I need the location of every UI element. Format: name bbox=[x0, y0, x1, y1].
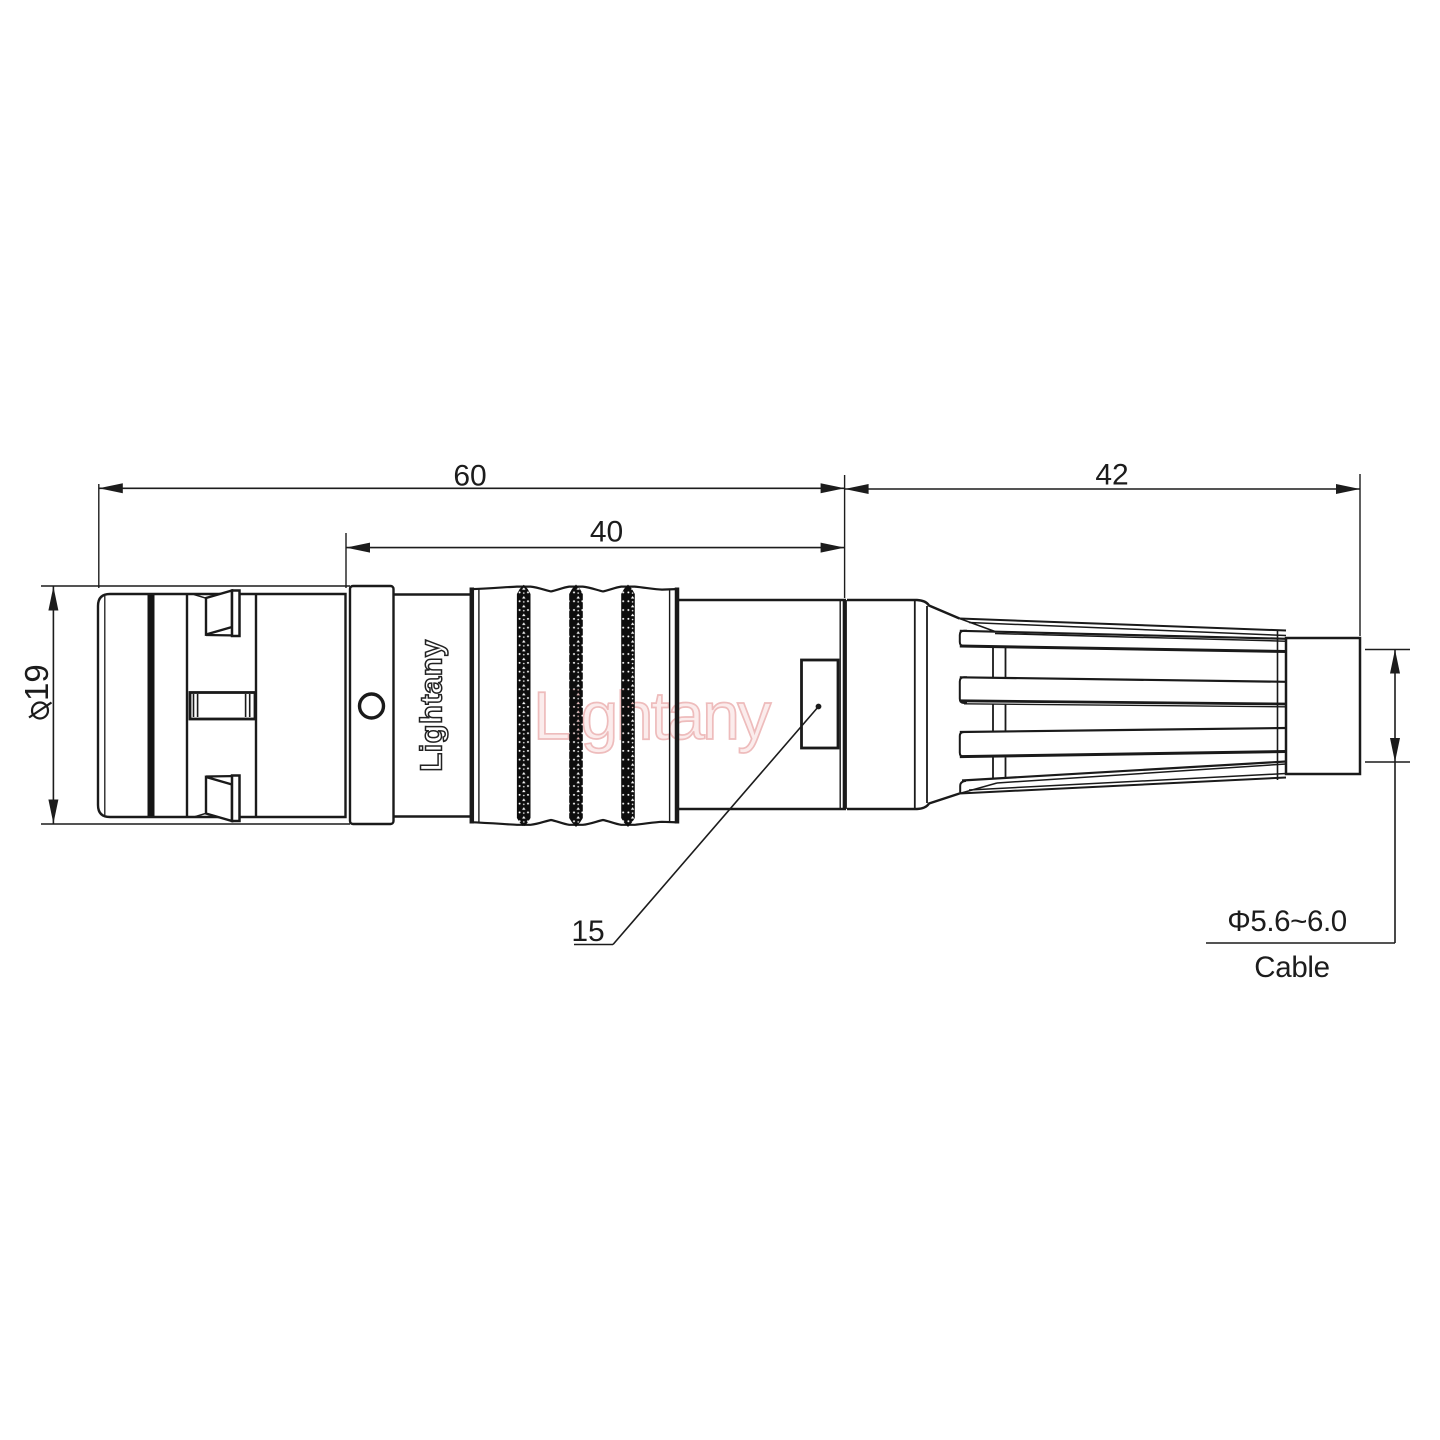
svg-text:Lightany: Lightany bbox=[533, 678, 771, 754]
svg-text:15: 15 bbox=[571, 915, 604, 948]
svg-text:Cable: Cable bbox=[1254, 951, 1330, 984]
svg-text:40: 40 bbox=[590, 516, 623, 549]
svg-text:Lightany: Lightany bbox=[414, 639, 449, 772]
svg-text:42: 42 bbox=[1095, 459, 1128, 492]
svg-text:Φ5.6~6.0: Φ5.6~6.0 bbox=[1227, 905, 1347, 938]
svg-text:19: 19 bbox=[18, 664, 55, 701]
svg-text:60: 60 bbox=[453, 460, 486, 493]
